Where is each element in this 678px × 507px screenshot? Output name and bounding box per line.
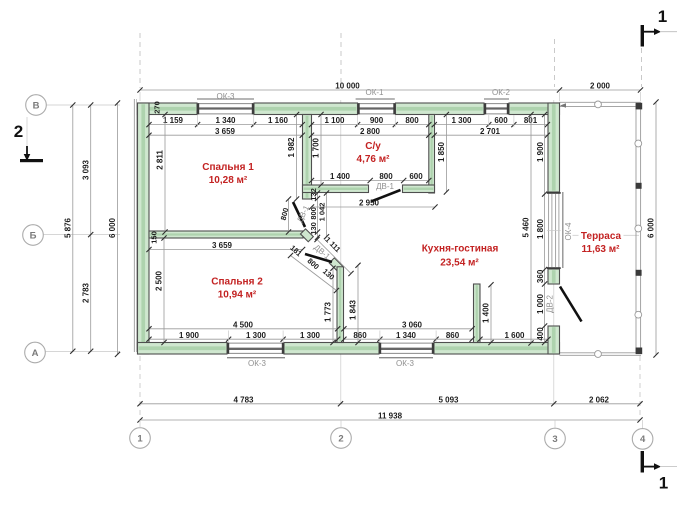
svg-text:1 100: 1 100 [324, 116, 345, 125]
svg-text:1 700: 1 700 [312, 137, 321, 158]
svg-text:В: В [33, 100, 40, 111]
svg-text:2: 2 [338, 433, 343, 444]
svg-text:С/у: С/у [365, 141, 381, 152]
svg-text:1 300: 1 300 [246, 331, 267, 340]
svg-text:6 000: 6 000 [108, 217, 117, 238]
svg-text:11 938: 11 938 [378, 412, 403, 421]
svg-text:1 160: 1 160 [268, 116, 289, 125]
svg-text:400: 400 [536, 327, 545, 341]
svg-text:Спальня 2: Спальня 2 [211, 277, 263, 288]
svg-text:5 093: 5 093 [438, 395, 459, 404]
svg-text:2 783: 2 783 [81, 282, 90, 303]
svg-text:1 000: 1 000 [536, 293, 545, 314]
svg-text:10,94 м²: 10,94 м² [218, 290, 257, 301]
svg-text:3 060: 3 060 [402, 320, 423, 329]
svg-text:1 900: 1 900 [536, 141, 545, 162]
svg-text:1 340: 1 340 [396, 331, 417, 340]
svg-text:10,28 м²: 10,28 м² [209, 175, 248, 186]
svg-text:1 800: 1 800 [536, 218, 545, 239]
svg-text:1 340: 1 340 [215, 116, 236, 125]
svg-text:4 783: 4 783 [233, 395, 254, 404]
svg-text:1 159: 1 159 [163, 116, 184, 125]
svg-text:3 659: 3 659 [212, 241, 233, 250]
svg-text:ОК-2: ОК-2 [492, 88, 511, 97]
svg-text:ОК-4: ОК-4 [564, 222, 573, 241]
svg-text:Спальня 1: Спальня 1 [202, 162, 254, 173]
svg-text:11,63 м²: 11,63 м² [582, 244, 621, 255]
svg-text:1 843: 1 843 [349, 299, 358, 320]
svg-text:2 701: 2 701 [480, 127, 501, 136]
svg-text:860: 860 [446, 331, 460, 340]
svg-text:2 800: 2 800 [360, 127, 381, 136]
svg-text:1 400: 1 400 [482, 302, 491, 323]
svg-text:ОК-3: ОК-3 [217, 92, 236, 101]
svg-text:600: 600 [409, 172, 423, 181]
svg-text:ДВ-2: ДВ-2 [546, 295, 555, 313]
svg-text:1 600: 1 600 [504, 331, 525, 340]
svg-text:1 773: 1 773 [324, 301, 333, 322]
svg-text:4,76 м²: 4,76 м² [357, 154, 391, 165]
svg-text:860: 860 [353, 331, 367, 340]
svg-text:ОК-3: ОК-3 [396, 359, 415, 368]
svg-text:ОК-1: ОК-1 [366, 88, 385, 97]
svg-text:1: 1 [137, 433, 143, 444]
svg-text:5 876: 5 876 [63, 217, 72, 238]
svg-text:1 982: 1 982 [287, 137, 296, 158]
svg-text:360: 360 [536, 269, 545, 283]
svg-text:1: 1 [658, 7, 667, 26]
svg-text:3 093: 3 093 [81, 159, 90, 180]
svg-text:1: 1 [659, 473, 668, 492]
svg-text:6 000: 6 000 [646, 217, 655, 238]
svg-text:2 811: 2 811 [156, 150, 165, 170]
svg-text:ДВ-1: ДВ-1 [376, 182, 394, 191]
svg-text:900: 900 [370, 116, 384, 125]
svg-text:4: 4 [640, 434, 646, 445]
svg-text:Терраса: Терраса [581, 231, 622, 242]
svg-text:1 300: 1 300 [451, 116, 472, 125]
svg-text:3 659: 3 659 [215, 127, 236, 136]
svg-text:150: 150 [150, 231, 159, 244]
svg-text:А: А [32, 348, 39, 359]
svg-text:2 500: 2 500 [155, 270, 164, 291]
svg-text:4 500: 4 500 [233, 320, 254, 329]
svg-text:5 460: 5 460 [522, 217, 531, 238]
svg-text:2 000: 2 000 [590, 82, 611, 91]
svg-text:10 000: 10 000 [335, 82, 360, 91]
svg-text:ОК-3: ОК-3 [248, 359, 267, 368]
svg-text:800: 800 [379, 172, 393, 181]
svg-text:23,54 м²: 23,54 м² [440, 258, 479, 269]
svg-text:1 300: 1 300 [300, 331, 321, 340]
svg-text:800: 800 [405, 116, 419, 125]
svg-text:270: 270 [153, 101, 162, 114]
svg-text:132: 132 [309, 188, 318, 201]
svg-text:600: 600 [494, 116, 508, 125]
svg-text:1 850: 1 850 [437, 141, 446, 162]
svg-text:2: 2 [14, 122, 23, 141]
svg-text:2 062: 2 062 [589, 395, 610, 404]
svg-text:2 950: 2 950 [359, 199, 380, 208]
svg-text:1 900: 1 900 [179, 331, 200, 340]
svg-text:1 042: 1 042 [317, 203, 326, 222]
svg-text:1 400: 1 400 [330, 172, 351, 181]
svg-text:Б: Б [30, 230, 37, 241]
svg-text:130: 130 [309, 222, 318, 235]
svg-text:3: 3 [552, 434, 557, 445]
svg-text:Кухня-гостиная: Кухня-гостиная [422, 244, 499, 255]
